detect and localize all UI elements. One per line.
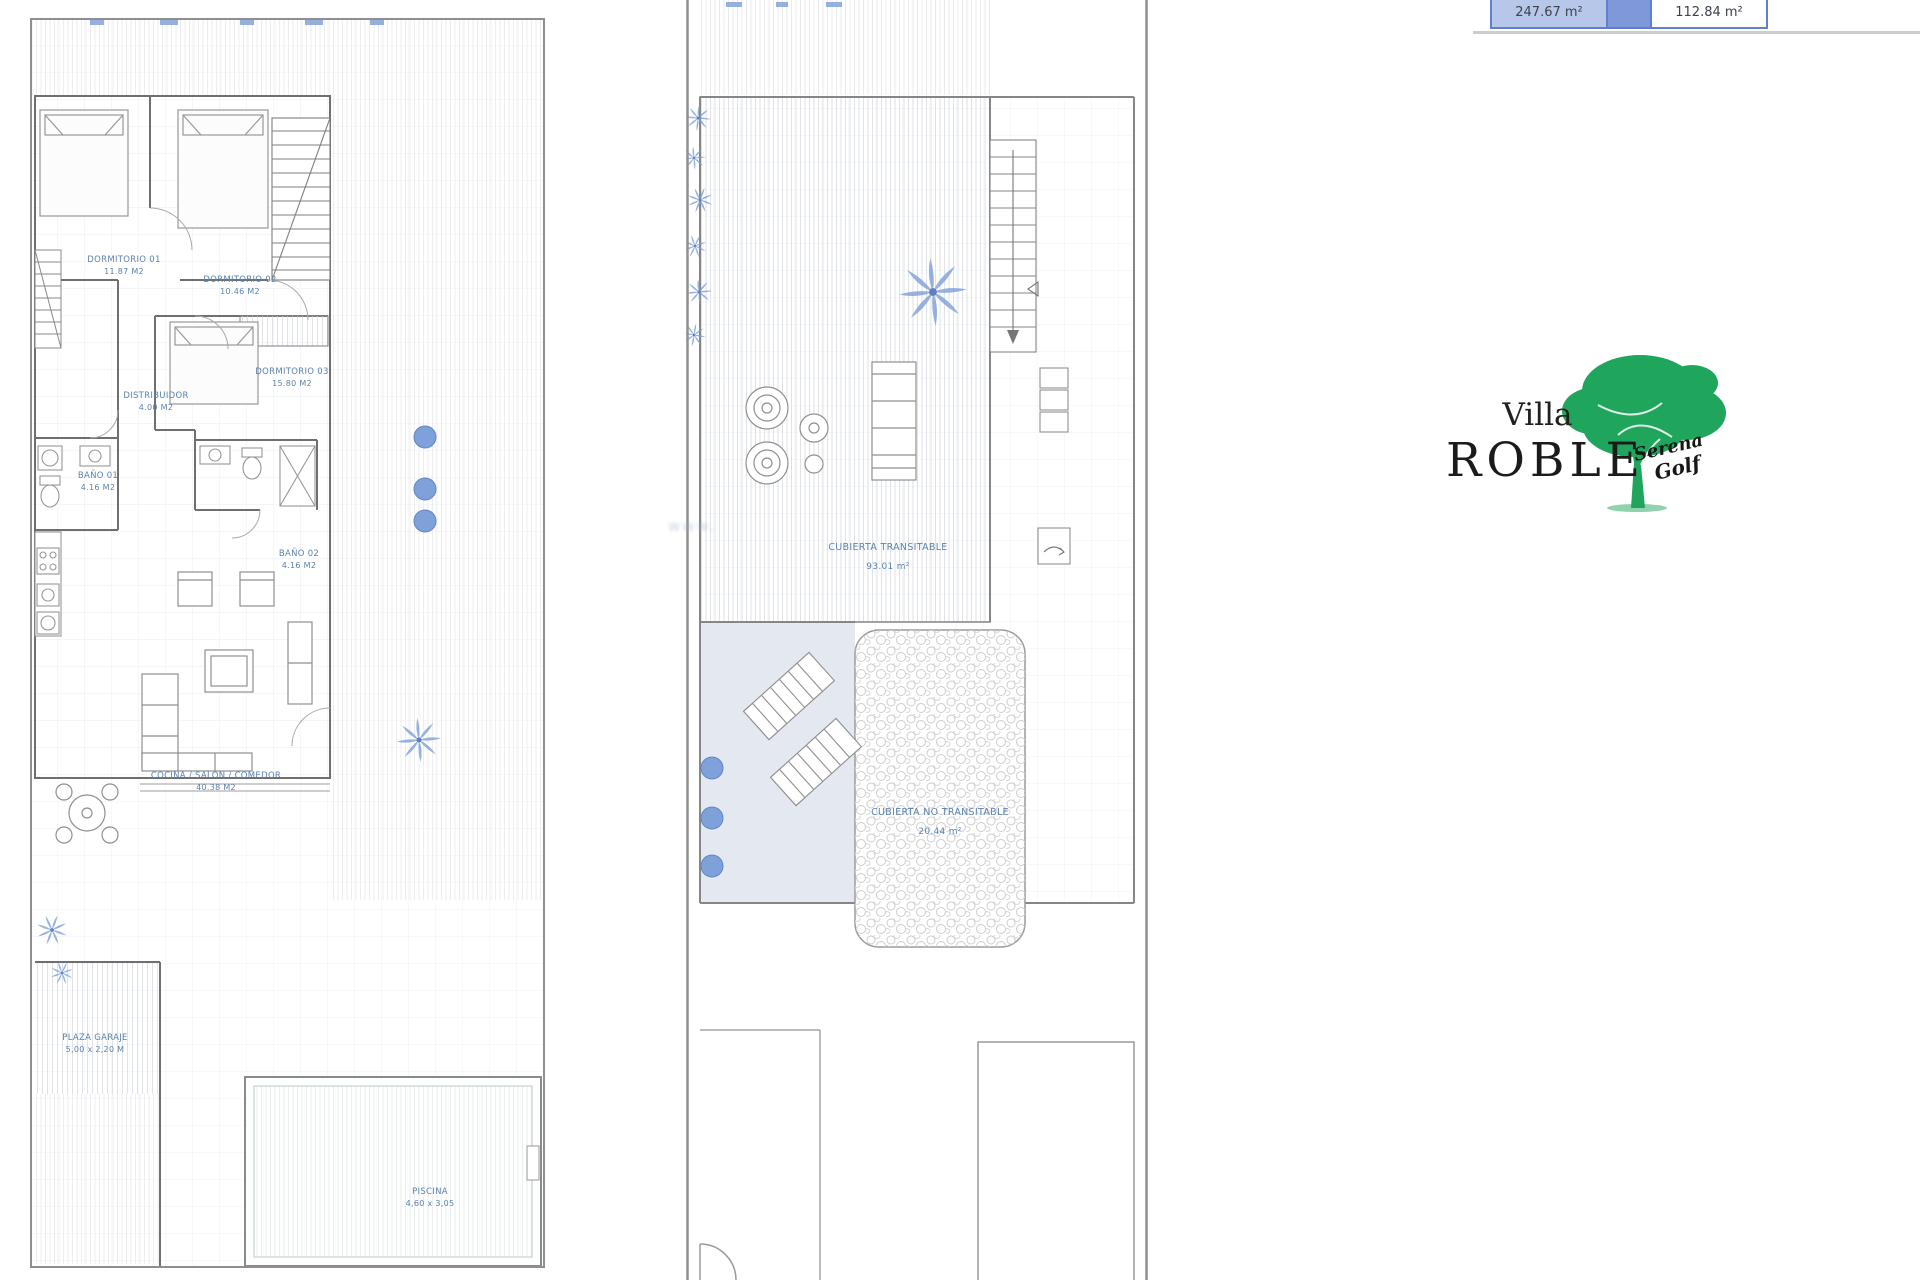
room-label-distribuidor: DISTRIBUIDOR 4.00 M2 xyxy=(111,390,201,414)
room-label-piscina: PISCINA 4,60 x 3,05 xyxy=(365,1186,495,1210)
armchair xyxy=(178,572,212,606)
room-label-bano-01: BAÑO 01 4.16 M2 xyxy=(63,470,133,494)
floorplan-page: DORMITORIO 01 11.87 M2 DORMITORIO 02 10.… xyxy=(0,0,1920,1280)
total-area-cell: 247.67 m² xyxy=(1492,0,1606,27)
round-chair xyxy=(746,387,788,429)
room-label-cubierta-no-transitable: CUBIERTA NO TRANSITABLE 20.44 m² xyxy=(850,806,1030,839)
room-label-dormitorio-02: DORMITORIO 02 10.46 M2 xyxy=(175,274,305,298)
bed-dormitorio-02 xyxy=(178,110,268,228)
room-label-dormitorio-03: DORMITORIO 03 15.80 M2 xyxy=(242,366,342,390)
round-chair xyxy=(746,442,788,484)
roof-sofa xyxy=(872,362,916,480)
watermark-text: www. xyxy=(668,517,888,535)
logo-villa-text: Villa xyxy=(1480,397,1595,433)
terrace-lights xyxy=(701,757,723,877)
roof-floor-panel: CUBIERTA TRANSITABLE 93.01 m² CUBIERTA N… xyxy=(686,0,1148,1280)
room-label-bano-02: BAÑO 02 4.16 M2 xyxy=(264,548,334,572)
room-label-plaza-garaje: PLAZA GARAJE 5,00 x 2,20 M xyxy=(30,1032,160,1056)
driveway-hatch xyxy=(35,1094,160,1264)
villa-roble-logo: Villa ROBLE Serena Golf xyxy=(1440,335,1750,520)
kitchen-counter xyxy=(35,532,61,636)
tv-unit xyxy=(288,622,312,704)
room-label-cubierta-transitable: CUBIERTA TRANSITABLE 93.01 m² xyxy=(798,541,978,574)
pool xyxy=(245,1077,541,1266)
closet xyxy=(35,250,61,348)
table-divider xyxy=(1606,0,1652,27)
table-shadow-line xyxy=(1473,31,1920,34)
terrace-hatch xyxy=(330,20,542,900)
stairs xyxy=(272,118,330,280)
room-label-dormitorio-01: DORMITORIO 01 11.87 M2 xyxy=(59,254,189,278)
logo-roble-text: ROBLE xyxy=(1446,433,1645,488)
roof-floor-drawing xyxy=(686,0,1148,1280)
roof-stairs xyxy=(990,140,1038,352)
ground-floor-drawing xyxy=(30,18,545,1268)
area-summary-table: 247.67 m² 112.84 m² xyxy=(1490,0,1768,29)
armchair xyxy=(240,572,274,606)
bed-dormitorio-01 xyxy=(40,110,128,216)
non-walkable-roof xyxy=(855,630,1025,947)
coffee-table xyxy=(205,650,253,692)
ground-floor-panel: DORMITORIO 01 11.87 M2 DORMITORIO 02 10.… xyxy=(30,18,545,1268)
garage-hatch xyxy=(35,962,160,1094)
built-area-cell: 112.84 m² xyxy=(1652,0,1766,27)
room-label-cocina-salon: COCINA / SALON / COMEDOR 40.38 M2 xyxy=(126,770,306,794)
